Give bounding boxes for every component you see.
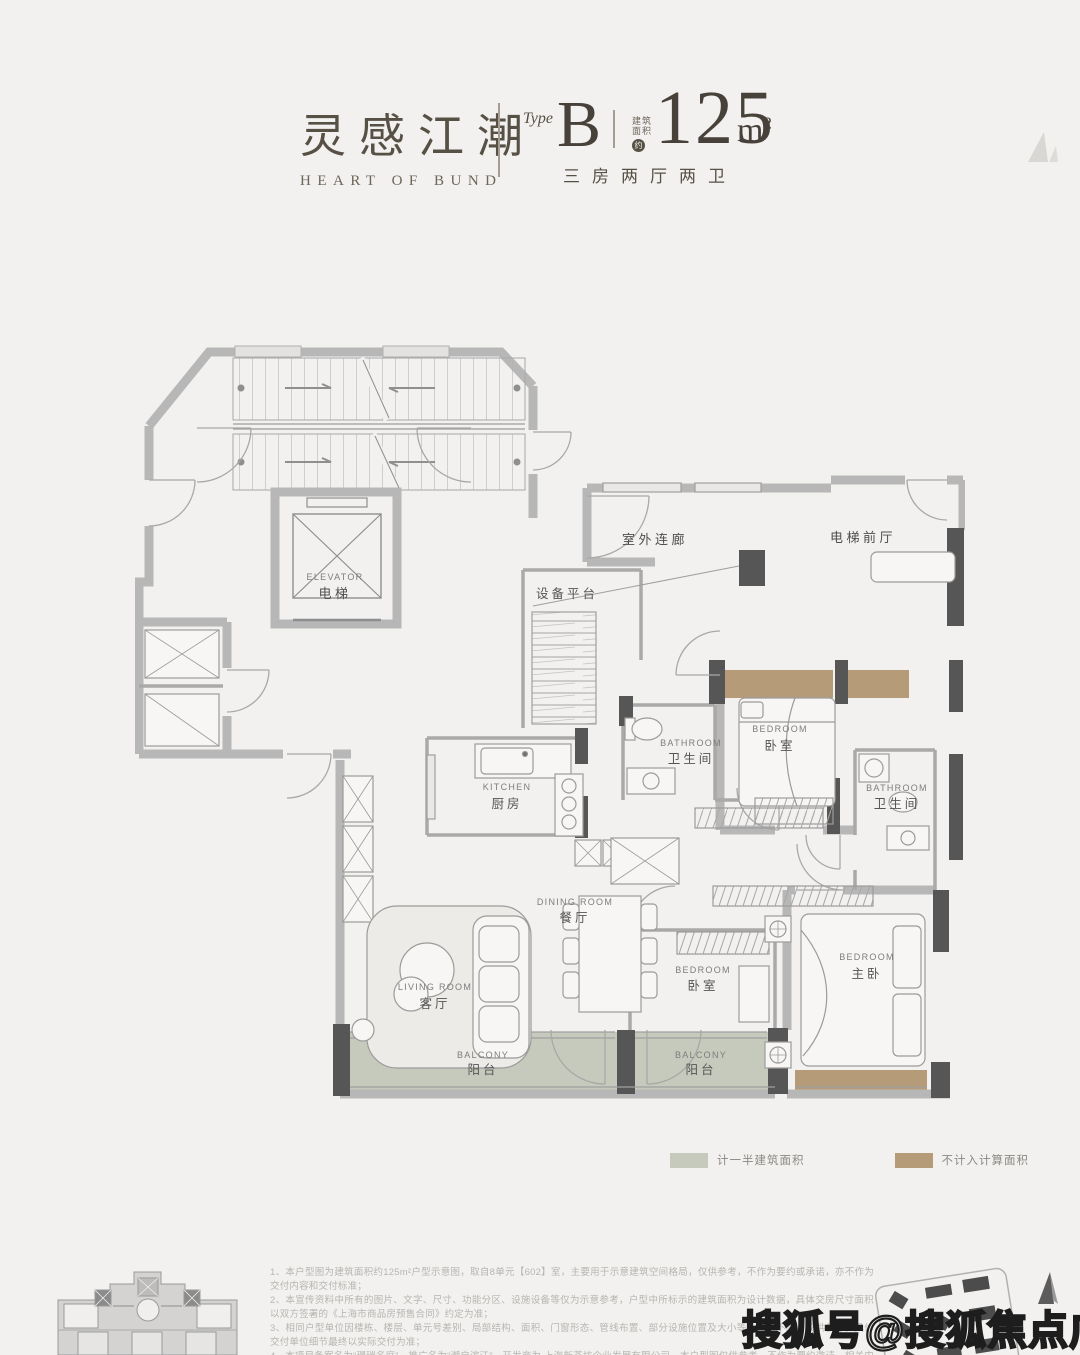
balcony1-label-cn: 阳台 [467, 1062, 498, 1077]
master-bedroom-label-cn: 主卧 [851, 967, 882, 981]
project-title-cn: 灵感江潮 [300, 100, 536, 166]
balcony2-label-cn: 阳台 [685, 1062, 716, 1077]
area-unit-sup: 2 [763, 114, 772, 133]
layout-description: 三房两厅两卫 [563, 162, 737, 187]
bedroom2-label-cn: 卧室 [687, 978, 718, 993]
living-label-cn: 客厅 [419, 996, 450, 1011]
header-divider [498, 103, 500, 177]
type-label: Type [523, 110, 553, 128]
dining-label-cn: 餐厅 [559, 910, 590, 925]
floorplan-drawing: ELEVATOR 电梯 室外连廊 电梯前厅 设备平台 KITCHEN 厨房 BA… [135, 330, 965, 1160]
master-bedroom-label-en: BEDROOM [839, 952, 895, 962]
legend-label-non-counted: 不计入计算面积 [942, 1152, 1030, 1168]
project-title-en: HEART OF BUND [300, 173, 536, 190]
area-approx-badge: 约 [632, 139, 645, 152]
living-label-en: LIVING ROOM [398, 982, 472, 992]
area-label-line2: 面积 [632, 126, 652, 136]
legend-swatch-half-area [670, 1153, 708, 1168]
louver-panel [532, 612, 596, 724]
floorplan-flyer-page: 灵感江潮 HEART OF BUND Type B 建筑 面积 约 125 m2… [0, 0, 1080, 1355]
balcony1-label-en: BALCONY [457, 1050, 509, 1060]
legend-label-half-area: 计一半建筑面积 [717, 1152, 805, 1168]
outdoor-corridor-label: 室外连廊 [622, 532, 688, 547]
bedroom2-label-en: BEDROOM [675, 965, 731, 975]
page-title: 灵感江潮 HEART OF BUND [300, 100, 536, 190]
balcony2-label-en: BALCONY [675, 1050, 727, 1060]
bathroom1-label-cn: 卫生间 [668, 752, 715, 766]
kitchen-label-en: KITCHEN [483, 782, 532, 792]
legend-item-non-counted: 不计入计算面积 [895, 1152, 1030, 1168]
area-unit-base: m [737, 112, 763, 149]
bathroom1-label-en: BATHROOM [660, 738, 722, 748]
area-label-line1: 建筑 [632, 116, 652, 126]
elevator-label-cn: 电梯 [318, 586, 351, 601]
elevator-shaft [275, 492, 397, 624]
area-label: 建筑 面积 约 [632, 116, 652, 152]
type-value: B [557, 92, 601, 158]
equipment-platform-label: 设备平台 [536, 586, 598, 601]
key-plan-diagram [50, 1262, 245, 1355]
dining-label-en: DINING ROOM [537, 897, 613, 907]
area-unit: m2 [737, 112, 772, 150]
legend-swatch-non-counted [895, 1153, 933, 1168]
legend: 计一半建筑面积 不计入计算面积 [670, 1152, 1029, 1168]
disclaimer-item-1: 1、本户型图为建筑面积约125m²户型示意图，取自8单元【602】室，主要用于示… [270, 1266, 874, 1293]
bedroom1-label-cn: 卧室 [764, 738, 795, 753]
header-divider-2 [613, 110, 615, 148]
bedroom1-label-en: BEDROOM [752, 724, 808, 734]
elevator-lobby-label: 电梯前厅 [830, 530, 896, 545]
bathroom2-label-cn: 卫生间 [874, 797, 921, 811]
legend-item-half-area: 计一半建筑面积 [670, 1152, 805, 1168]
watermark: 搜狐号@搜狐焦点广安站 [742, 1298, 1080, 1355]
staircase [233, 346, 525, 490]
brand-sail-icon [1022, 128, 1062, 168]
kitchen-label-cn: 厨房 [491, 796, 522, 811]
elevator-label-en: ELEVATOR [307, 572, 364, 582]
bathroom2-label-en: BATHROOM [866, 783, 928, 793]
